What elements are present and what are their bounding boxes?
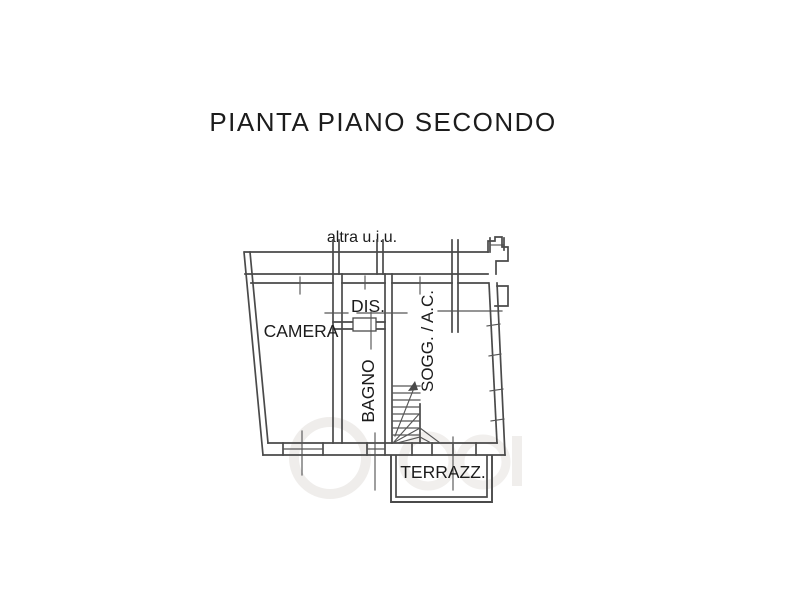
room-label-soggiorno: SOGG. / A.C. bbox=[418, 290, 437, 392]
watermark-bar bbox=[512, 436, 522, 486]
right-wall bbox=[487, 237, 508, 455]
room-label-camera: CAMERA bbox=[264, 321, 339, 341]
floorplan-page: PIANTA PIANO SECONDO altra u.i.u. bbox=[0, 0, 796, 600]
floorplan-drawing: PIANTA PIANO SECONDO altra u.i.u. bbox=[0, 0, 796, 600]
room-label-dis: DIS. bbox=[351, 296, 385, 316]
opening-markers bbox=[325, 311, 502, 349]
other-unit-annotation: altra u.i.u. bbox=[327, 229, 397, 246]
door-leaf bbox=[353, 318, 376, 331]
room-label-bagno: BAGNO bbox=[358, 359, 378, 422]
interior-walls bbox=[333, 240, 458, 443]
room-label-terrazzo: TERRAZZ. bbox=[400, 462, 486, 482]
page-title: PIANTA PIANO SECONDO bbox=[209, 107, 556, 137]
